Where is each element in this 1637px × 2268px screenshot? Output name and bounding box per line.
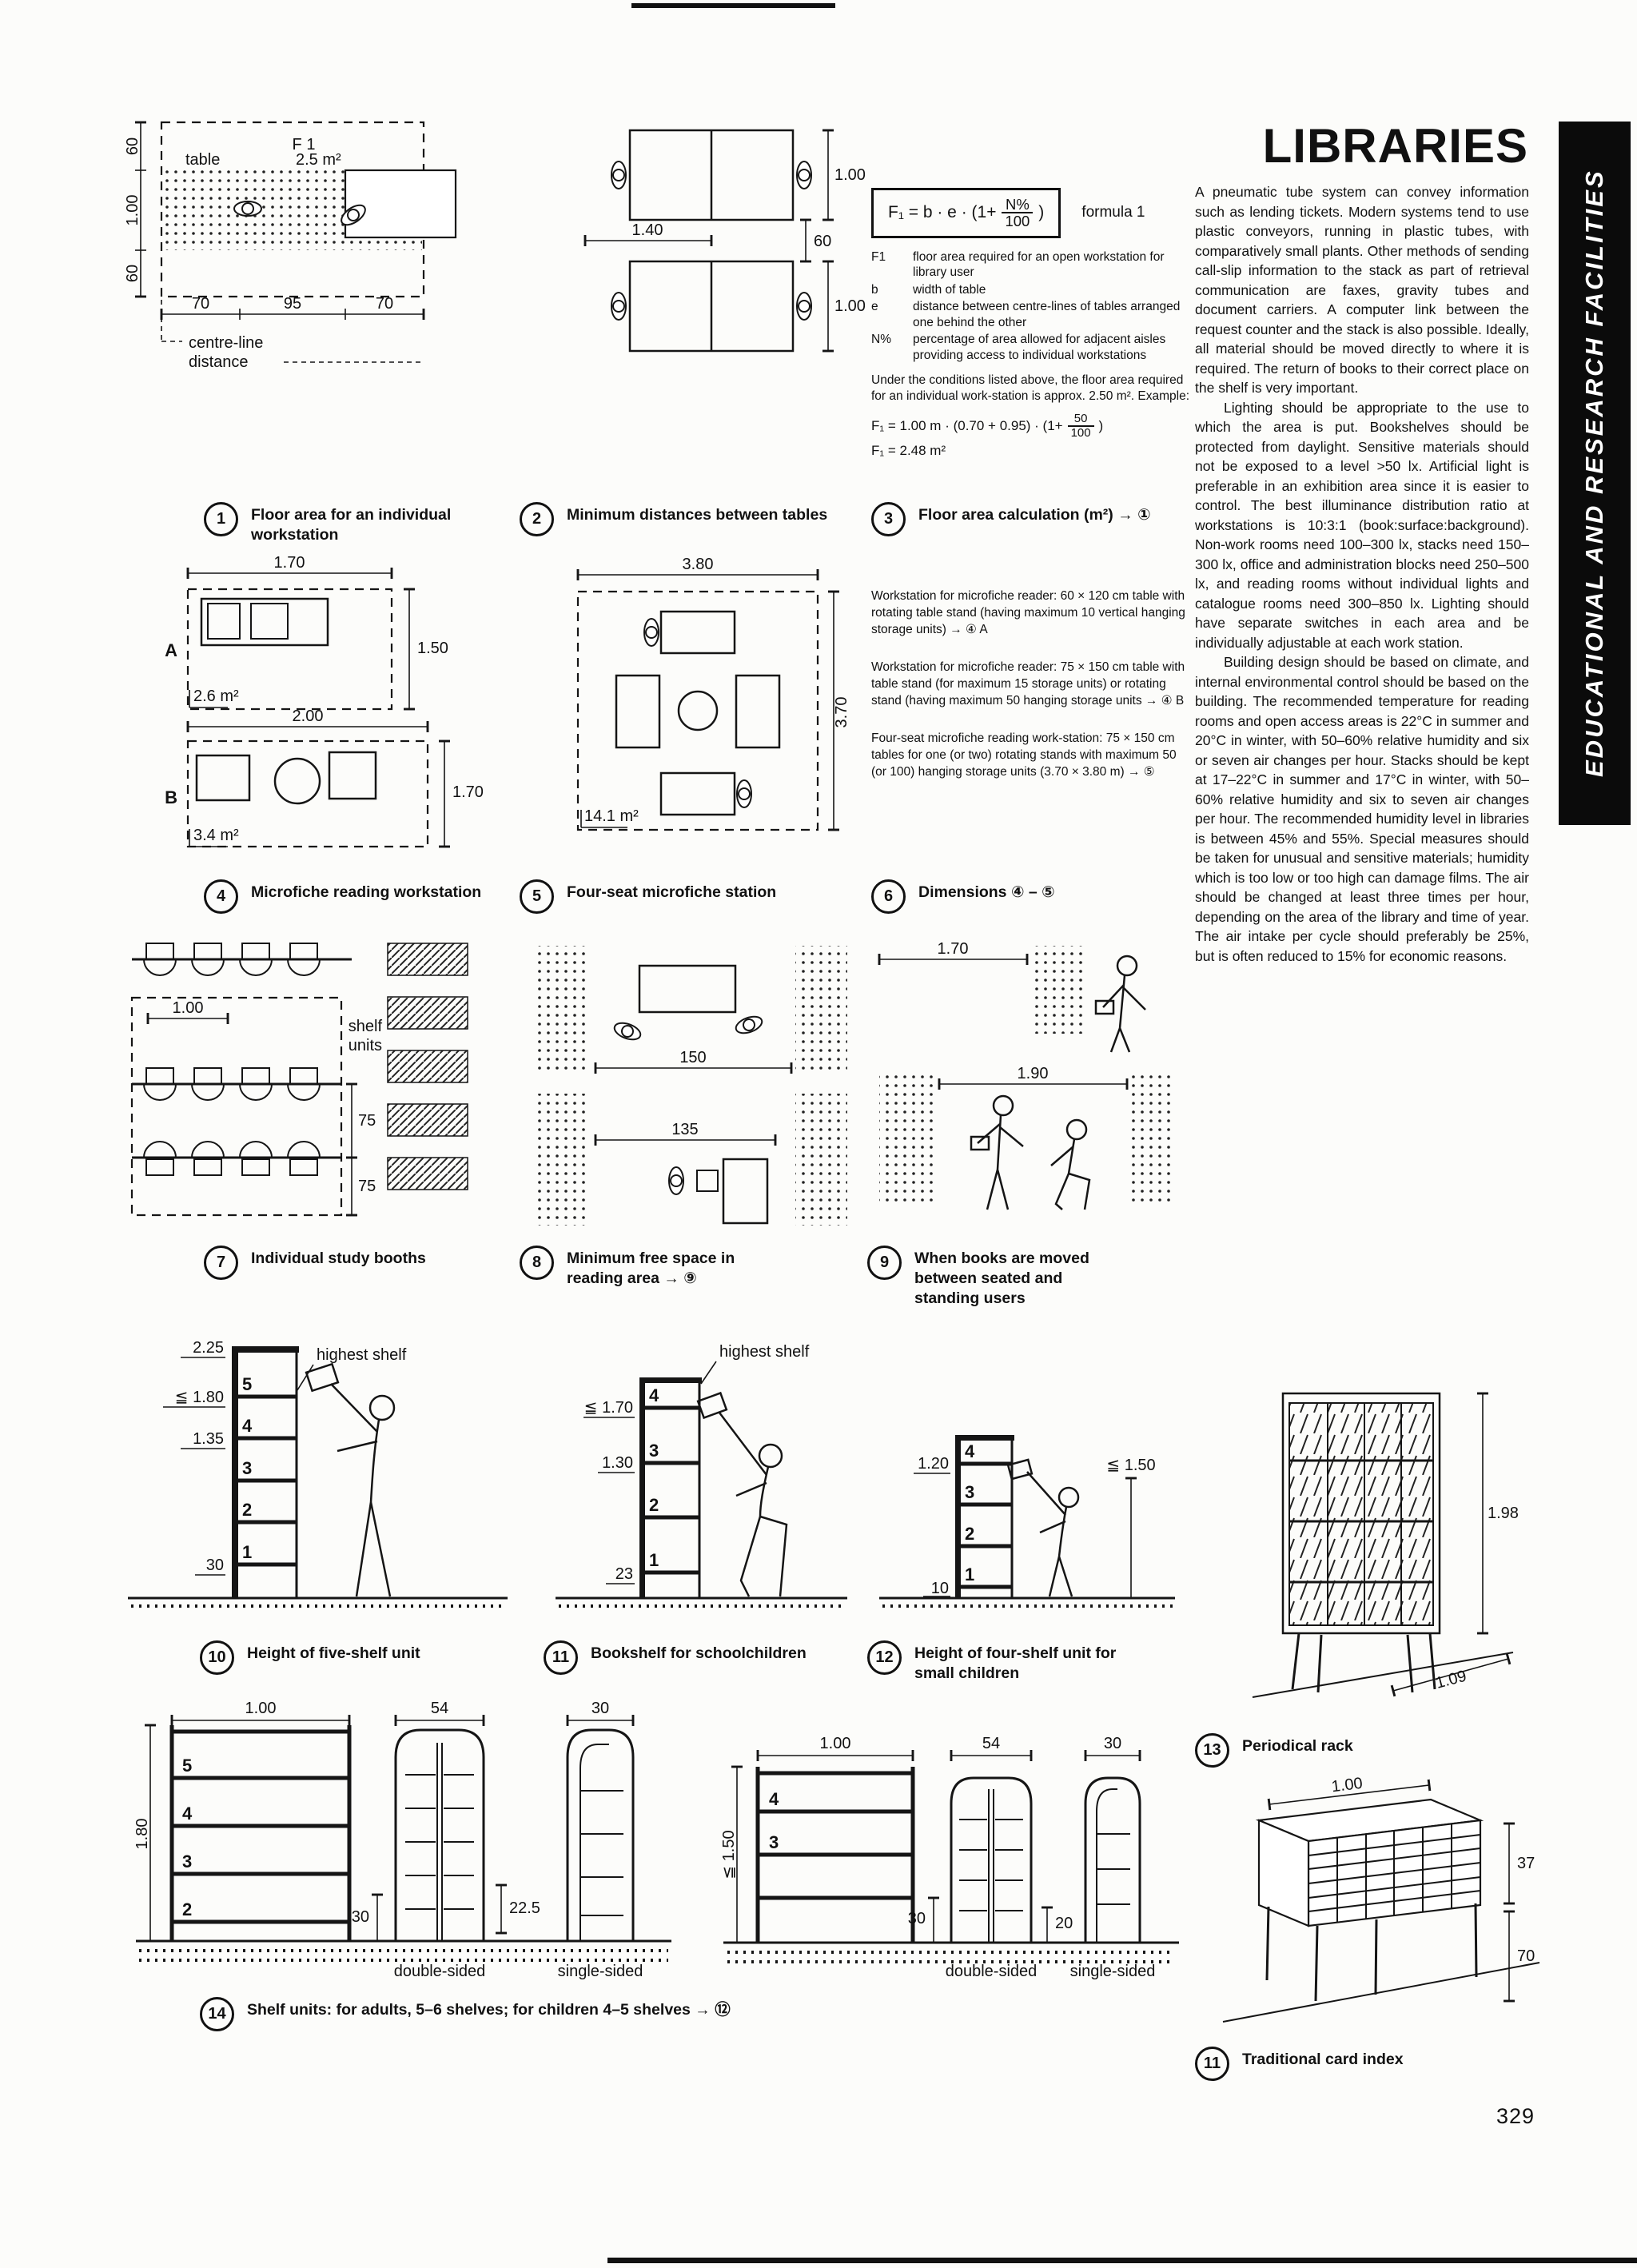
dim-label: ≦ 1.70 [584,1399,633,1417]
shelf-units-label: shelf [349,1018,383,1035]
book-page: LIBRARIES EDUCATIONAL AND RESEARCH FACIL… [0,0,1637,2268]
fig-11b-diagram: 1.00 37 70 [1191,1771,1551,2035]
dim-label: 60 [814,233,831,250]
area-label: 14.1 m² [584,807,639,825]
centre-line-label: centre-line [189,334,263,352]
figure-caption: Floor area for an individual workstation [251,502,500,545]
dim-label: 1.50 [417,640,448,657]
person-figure [971,1096,1023,1210]
dim-label: 30 [908,1910,926,1927]
single-sided-label: single-sided [558,1963,643,1980]
shelf-number: 1 [649,1550,659,1570]
figure-number-badge: 3 [871,502,906,536]
formula-tag: formula 1 [1081,204,1145,221]
dim-label: 150 [679,1049,706,1066]
dim-label: 135 [671,1121,698,1138]
figure-number-badge: 8 [520,1246,554,1280]
variant-label: A [165,640,177,660]
figure-caption: Floor area calculation (m²) → ① [918,502,1151,525]
shelf-unit-block [388,1104,468,1136]
caption-1: 1 Floor area for an individual workstati… [204,502,500,545]
person-figure [1051,1120,1089,1210]
highest-shelf-label: highest shelf [719,1343,810,1361]
person-figure [737,780,751,807]
stack-block [1131,1070,1175,1202]
figure-caption: Bookshelf for schoolchildren [591,1640,807,1664]
figure-caption: Traditional card index [1242,2047,1404,2070]
figure-caption: Four-seat microfiche station [567,879,776,903]
shelf-number: 2 [242,1500,252,1520]
figure-number-badge: 1 [204,502,238,536]
dim-label: 54 [982,1735,1000,1752]
double-sided-label: double-sided [394,1963,486,1980]
table-plan [723,1159,767,1223]
caption-11b: 11 Traditional card index [1195,2047,1539,2081]
figure-caption: Microfiche reading workstation [251,879,481,903]
shelf-unit-block [388,997,468,1029]
magazine-shelves [1289,1403,1433,1625]
person-figure [644,619,659,646]
table-plan [329,752,376,799]
shelf-unit-block [388,1050,468,1082]
shelf-units-label: units [349,1037,382,1054]
centre-line-label: distance [189,353,249,371]
caption-6: 6 Dimensions ④ – ⑤ [871,879,1183,914]
formula-fraction: N% 100 [1002,197,1033,229]
dim-label: ≦ 1.50 [1106,1457,1155,1474]
fig-2-diagram: 1.40 60 1.00 1.00 [536,108,871,384]
table-label: table [185,151,220,169]
microfiche-paragraph: Workstation for microfiche reader: 75 × … [871,659,1191,709]
person-figure [1008,1460,1078,1596]
area-label: 3.4 m² [193,827,239,844]
dim-label: 22.5 [509,1899,540,1917]
table-plan [639,966,735,1012]
shelf-number: 4 [965,1441,975,1461]
fig-14-left-diagram: 5 4 3 2 1.00 1.80 54 30 22.5 30 double-s… [120,1701,687,1981]
variant-label: B [165,787,177,807]
shelf-number: 2 [965,1524,974,1544]
figure-caption: When books are moved between seated and … [914,1246,1131,1309]
figure-number-badge: 9 [867,1246,902,1280]
person-figure [611,293,626,320]
person-figure [797,293,811,320]
chair-plan [697,1170,718,1191]
shelf-number: 4 [182,1804,193,1824]
dim-label: 95 [284,295,301,313]
dim-label: 60 [124,265,141,282]
shelf-number: 5 [242,1374,252,1394]
stack-block [536,946,587,1070]
person-figure [797,161,811,189]
microfiche-paragraph: Four-seat microfiche reading work-statio… [871,730,1191,780]
shelf-unit-block [388,943,468,975]
stack-block [879,1070,935,1202]
page-number: 329 [1455,2104,1535,2129]
dim-label: 1.40 [632,221,663,239]
table-plan [736,676,779,747]
figure-caption: Periodical rack [1242,1733,1353,1756]
fig-8-diagram: 150 135 [520,934,863,1238]
figure-caption: Dimensions ④ – ⑤ [918,879,1055,903]
section-banner: EDUCATIONAL AND RESEARCH FACILITIES [1559,122,1631,825]
dim-label: 1.35 [193,1430,224,1448]
figure-number-badge: 13 [1195,1733,1229,1768]
caption-5: 5 Four-seat microfiche station [520,879,831,914]
dim-label: 1.70 [452,783,484,801]
fig-4-diagram: 1.70 1.50 A 2.6 m² 2.00 1.70 B 3.4 m² [112,556,488,867]
fig-11-diagram: 1 2 3 4 ≦ 1.70 1.30 23 highest shelf [544,1315,859,1635]
formula-example-result: F₁ = 2.48 m² [871,443,1191,459]
formula-block: F₁ = b · e · (1+ N% 100 ) formula 1 F1fl… [871,188,1191,459]
dim-label: 3.70 [833,697,850,728]
dim-label: ≦ 1.80 [175,1389,224,1406]
dim-label: 30 [591,1701,609,1717]
body-paragraph: Lighting should be appropriate to the us… [1195,398,1529,653]
formula-lhs: F₁ = b · e · (1+ [888,203,996,222]
caption-12: 12 Height of four-shelf unit for small c… [867,1640,1155,1684]
page-title: LIBRARIES [1039,118,1528,173]
dim-label: 30 [352,1908,369,1926]
dim-label: 2.00 [293,708,324,725]
dim-label: 1.09 [1434,1668,1468,1692]
dim-label: 37 [1517,1855,1535,1872]
dim-label: 2.25 [193,1339,224,1357]
figure-caption: Height of four-shelf unit for small chil… [914,1640,1155,1684]
caption-10: 10 Height of five-shelf unit [200,1640,520,1675]
area-label: 2.6 m² [193,688,239,705]
dim-label: 60 [124,138,141,155]
dim-label: ≦ 1.50 [720,1830,738,1879]
caption-13: 13 Periodical rack [1195,1733,1531,1768]
shelf-number: 5 [182,1756,192,1776]
scan-artifact-bottom [607,2258,1637,2263]
caption-11: 11 Bookshelf for schoolchildren [544,1640,863,1675]
table-plan [661,773,735,815]
dim-label: 1.30 [602,1454,633,1472]
formula-example: F₁ = 1.00 m · (0.70 + 0.95) · (1+ 50100 … [871,413,1191,439]
figure-caption: Individual study booths [251,1246,426,1269]
shelf-number: 3 [182,1851,192,1871]
formula-definitions: F1floor area required for an open workst… [871,249,1191,364]
dim-label: 1.00 [173,999,204,1017]
figure-number-badge: 14 [200,1997,234,2031]
stack-block [795,1094,847,1226]
body-paragraph: Building design should be based on clima… [1195,652,1529,966]
dim-label: 1.00 [834,297,866,315]
dim-label: 1.20 [918,1455,949,1473]
person-figure [669,1167,683,1194]
figure-number-badge: 4 [204,879,238,914]
person-figure [611,161,626,189]
figure-number-badge: 11 [544,1640,578,1675]
fig-9-diagram: 1.70 1.90 [867,934,1187,1238]
dim-label: 70 [192,295,209,313]
caption-3: 3 Floor area calculation (m²) → ① [871,502,1183,536]
person-figure [306,1364,394,1596]
figure-number-badge: 6 [871,879,906,914]
dim-label: 1.00 [124,195,141,226]
dim-label: 1.90 [1018,1065,1049,1082]
table-plan [345,170,456,237]
person-figure [698,1393,787,1596]
figure-number-badge: 12 [867,1640,902,1675]
shelf-number: 3 [649,1441,659,1461]
main-text-column: A pneumatic tube system can convey infor… [1195,182,1529,966]
dim-label: 1.00 [245,1701,277,1717]
caption-2: 2 Minimum distances between tables [520,502,831,536]
shelf-unit-block [388,1158,468,1190]
caption-4: 4 Microfiche reading workstation [204,879,516,914]
fig-14-right-diagram: 4 3 1.00 ≦ 1.50 54 30 20 30 double-sided… [711,1717,1191,1981]
highest-shelf-label: highest shelf [317,1346,407,1364]
double-sided-label: double-sided [946,1963,1038,1980]
dim-label: 1.00 [820,1735,851,1752]
shelf-number: 1 [242,1542,252,1562]
dim-label: 30 [206,1557,224,1574]
caption-9: 9 When books are moved between seated an… [867,1246,1131,1309]
microfiche-paragraph: Workstation for microfiche reader: 60 × … [871,588,1191,638]
person-figure [1096,956,1145,1052]
dim-label: 1.70 [274,556,305,572]
dim-label: 1.00 [834,166,866,184]
shelf-number: 1 [965,1564,974,1584]
stack-block [795,946,847,1070]
area-label: 2.5 m² [296,151,341,169]
single-sided-label: single-sided [1070,1963,1156,1980]
table-plan [661,612,735,653]
section-banner-text: EDUCATIONAL AND RESEARCH FACILITIES [1580,169,1609,778]
rotating-stand [275,759,320,803]
figure-caption: Minimum free space in reading area → ⑨ [567,1246,783,1289]
dim-label: 23 [615,1565,633,1583]
dim-label: 3.80 [683,556,714,573]
fig-10-diagram: 1 2 3 4 5 2.25 ≦ 1.80 1.35 30 highest sh… [112,1315,520,1635]
dim-label: 70 [376,295,393,313]
person-figure [234,201,261,216]
fig-1-diagram: 60 1.00 60 F 1 table 2.5 m² 70 95 70 cen… [112,108,472,380]
caption-7: 7 Individual study booths [204,1246,508,1280]
body-paragraph: A pneumatic tube system can convey infor… [1195,182,1529,398]
shelf-number: 4 [769,1789,779,1809]
person-figure [734,1014,764,1037]
dim-label: 10 [931,1580,949,1597]
person-figure [612,1020,643,1043]
dim-label: 75 [358,1112,376,1130]
fig-7-diagram: 1.00 75 75 shelf units [112,934,480,1238]
microfiche-text: Workstation for microfiche reader: 60 × … [871,588,1191,801]
dim-label: 1.98 [1488,1505,1519,1522]
dim-label: 20 [1055,1915,1073,1932]
dim-label: 1.70 [938,940,969,958]
figure-number-badge: 11 [1195,2047,1229,2081]
shelf-number: 3 [965,1482,974,1502]
shelf-number: 2 [649,1495,659,1515]
figure-caption: Shelf units: for adults, 5–6 shelves; fo… [247,1997,731,2020]
figure-number-badge: 7 [204,1246,238,1280]
caption-14: 14 Shelf units: for adults, 5–6 shelves;… [200,1997,1119,2031]
shelf-number: 4 [242,1416,253,1436]
dim-label: 75 [358,1178,376,1195]
fig-5-diagram: 3.80 3.70 14.1 m² [532,556,859,867]
caption-8: 8 Minimum free space in reading area → ⑨ [520,1246,783,1289]
figure-caption: Height of five-shelf unit [247,1640,420,1664]
figure-number-badge: 10 [200,1640,234,1675]
stack-block [536,1094,587,1226]
fig-12-diagram: 1 2 3 4 1.20 10 ≦ 1.50 [867,1315,1187,1635]
dim-label: 1.00 [1331,1775,1364,1796]
shelf-number: 4 [649,1385,659,1405]
figure-caption: Minimum distances between tables [567,502,827,525]
dim-label: 54 [431,1701,448,1717]
shelf-number: 3 [769,1832,779,1852]
dim-label: 1.80 [133,1819,151,1850]
shelf-number: 3 [242,1458,252,1478]
dim-label: 70 [1517,1947,1535,1965]
dim-label: 30 [1104,1735,1121,1752]
shelf-number: 2 [182,1899,192,1919]
rotating-stand [679,692,717,730]
formula-box: F₁ = b · e · (1+ N% 100 ) [871,188,1061,238]
formula-note: Under the conditions listed above, the f… [871,373,1191,405]
stack-block [1031,946,1087,1034]
table-plan [616,676,659,747]
table-plan [197,755,249,800]
scan-artifact-top [631,3,835,8]
figure-number-badge: 2 [520,502,554,536]
fig-13-diagram: 1.98 1.09 [1243,1371,1523,1715]
figure-number-badge: 5 [520,879,554,914]
